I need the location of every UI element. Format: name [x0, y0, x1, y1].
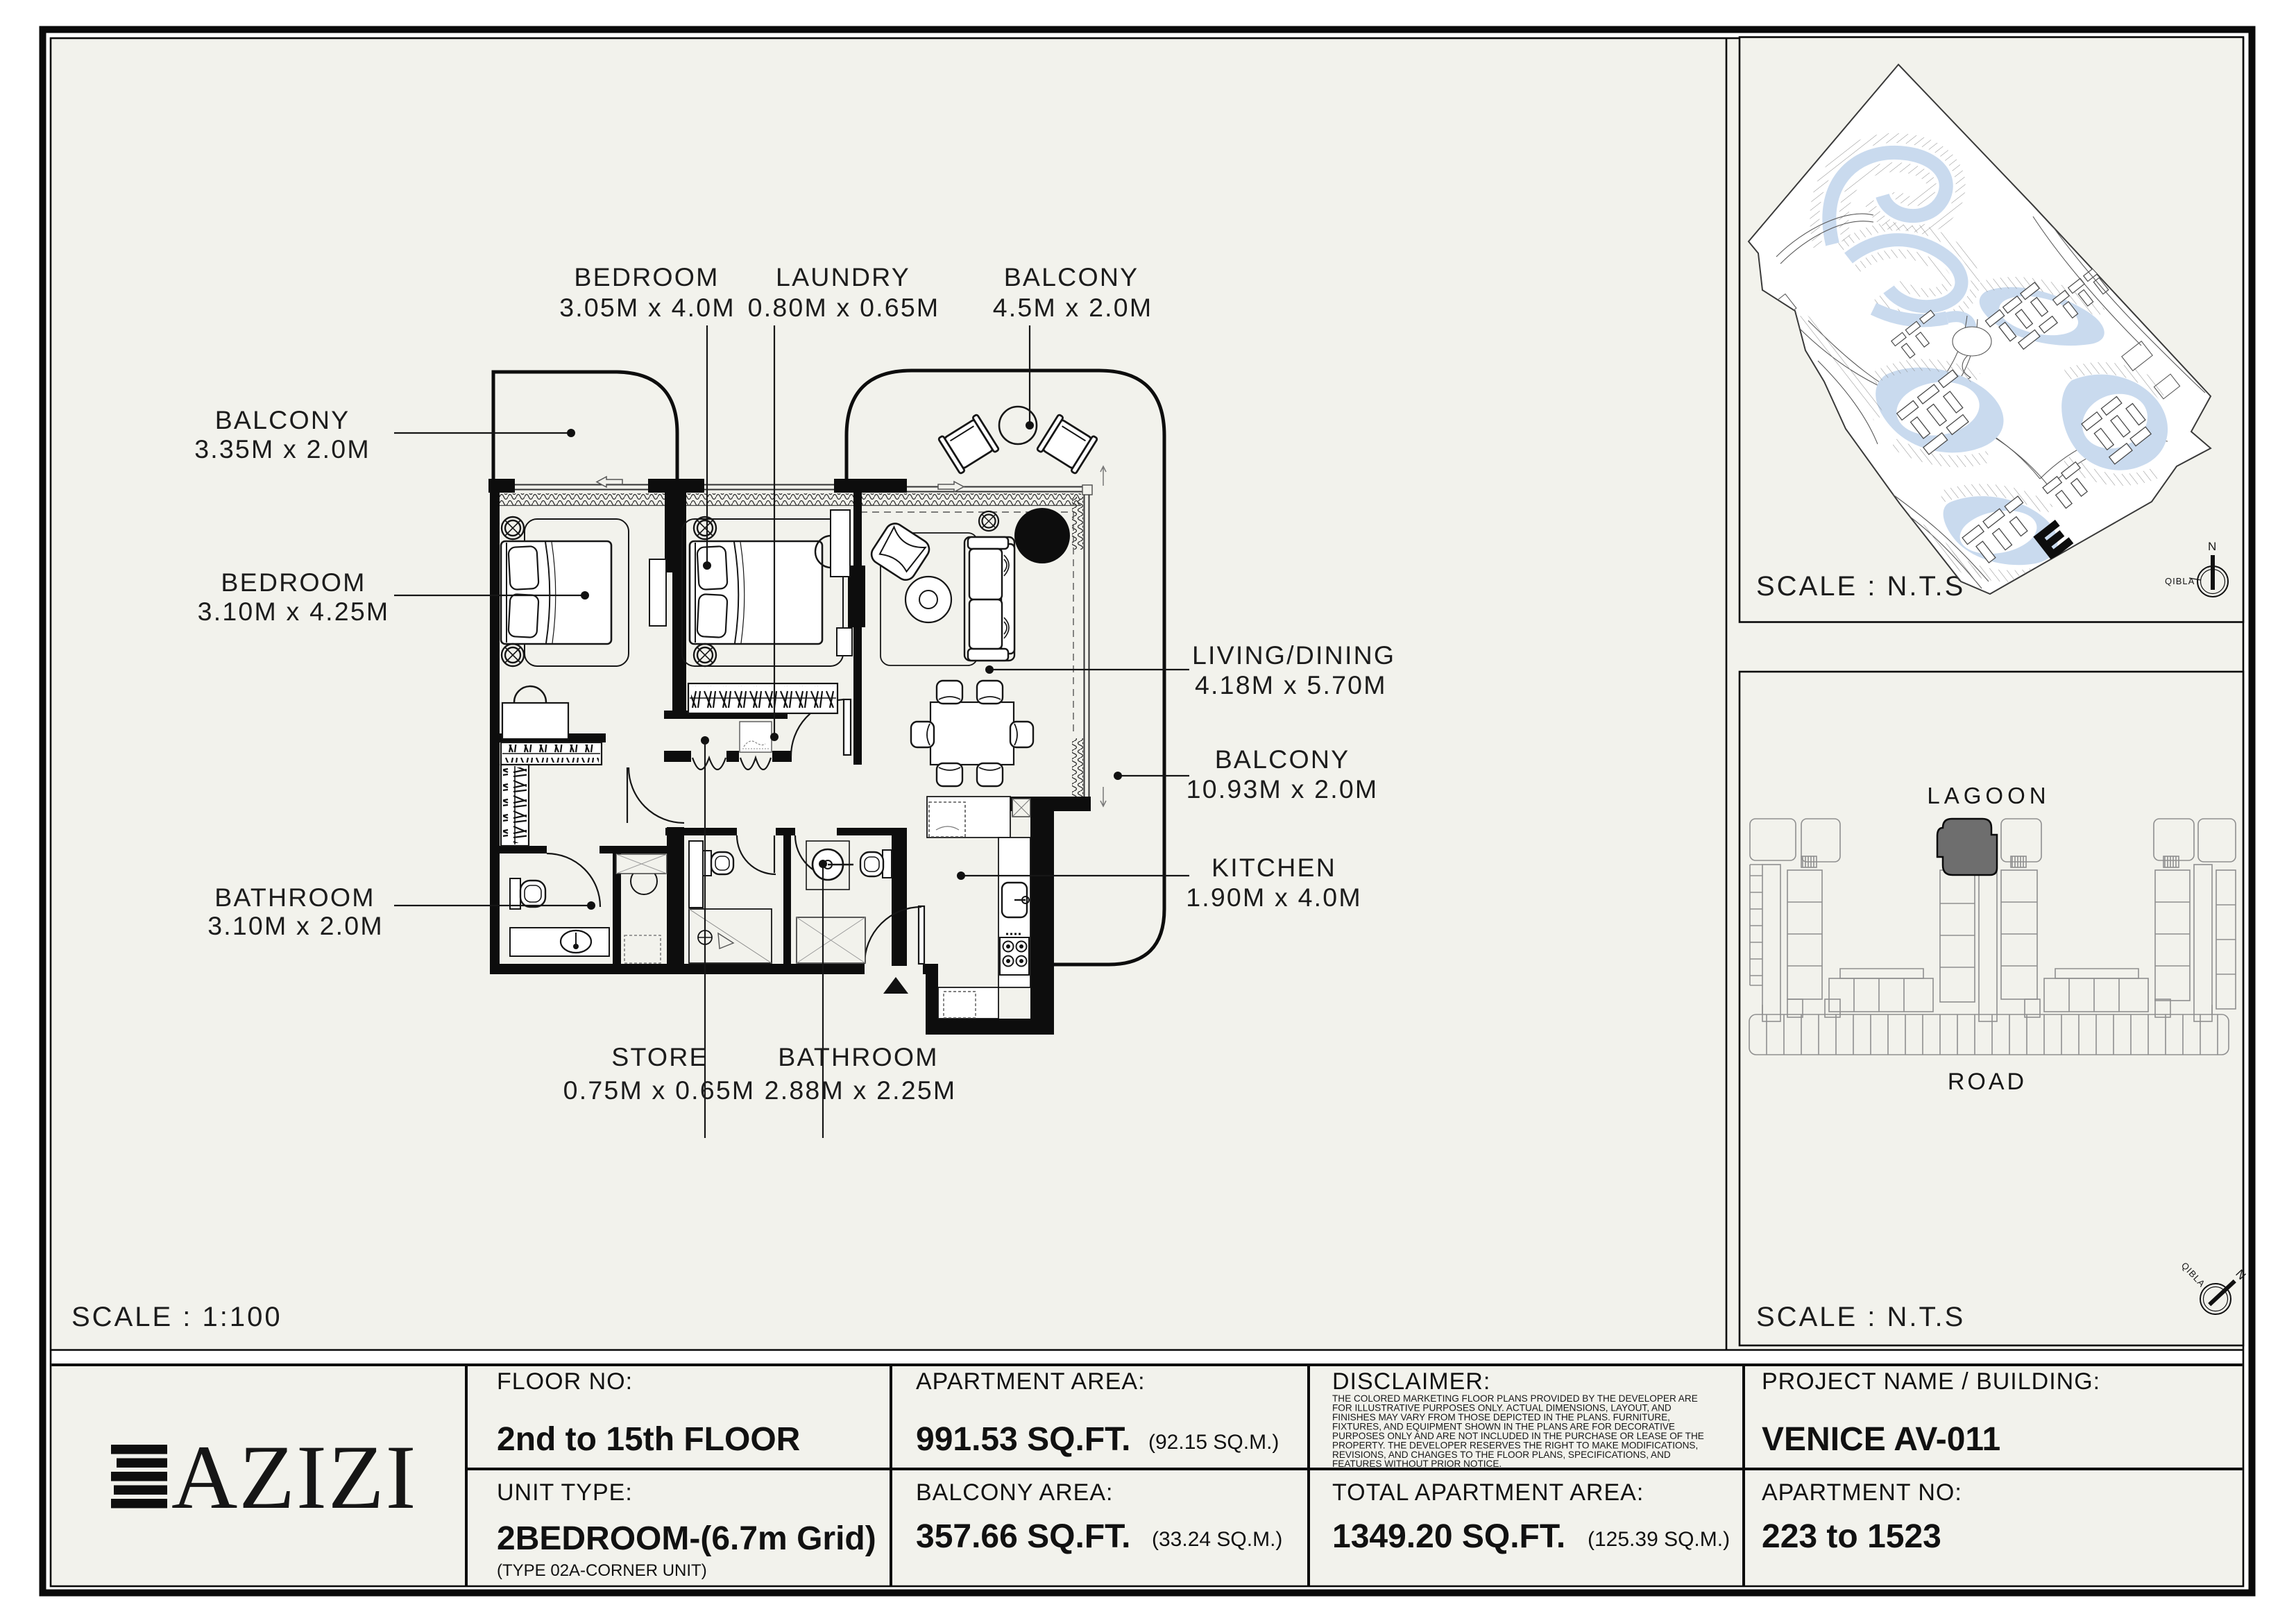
svg-text:3.35M x 2.0M: 3.35M x 2.0M — [194, 434, 371, 464]
svg-text:BATHROOM: BATHROOM — [214, 883, 375, 912]
svg-text:(125.39 SQ.M.): (125.39 SQ.M.) — [1588, 1528, 1730, 1551]
svg-text:4.18M x 5.70M: 4.18M x 5.70M — [1195, 670, 1387, 699]
svg-text:VENICE AV-011: VENICE AV-011 — [1762, 1421, 2000, 1458]
svg-text:N: N — [2208, 540, 2216, 553]
svg-text:3.10M x 2.0M: 3.10M x 2.0M — [207, 911, 384, 940]
svg-text:LIVING/DINING: LIVING/DINING — [1192, 640, 1395, 670]
svg-text:1.90M x 4.0M: 1.90M x 4.0M — [1186, 883, 1362, 912]
svg-text:4.5M x 2.0M: 4.5M x 2.0M — [993, 293, 1153, 322]
svg-text:UNIT TYPE:: UNIT TYPE: — [497, 1479, 633, 1506]
svg-text:SCALE : 1:100: SCALE : 1:100 — [71, 1302, 282, 1332]
svg-text:BALCONY AREA:: BALCONY AREA: — [916, 1479, 1114, 1506]
svg-text:3.05M x 4.0M: 3.05M x 4.0M — [559, 293, 735, 322]
svg-text:DISCLAIMER:: DISCLAIMER: — [1332, 1368, 1490, 1395]
svg-text:10.93M x 2.0M: 10.93M x 2.0M — [1187, 774, 1379, 804]
svg-text:991.53 SQ.FT.: 991.53 SQ.FT. — [916, 1421, 1131, 1458]
svg-text:2BEDROOM-(6.7m Grid): 2BEDROOM-(6.7m Grid) — [497, 1520, 876, 1557]
svg-text:357.66 SQ.FT.: 357.66 SQ.FT. — [916, 1518, 1131, 1555]
svg-text:APARTMENT NO:: APARTMENT NO: — [1762, 1479, 1962, 1506]
svg-text:APARTMENT AREA:: APARTMENT AREA: — [916, 1368, 1146, 1395]
svg-text:PROJECT NAME / BUILDING:: PROJECT NAME / BUILDING: — [1762, 1368, 2100, 1395]
svg-text:FLOOR NO:: FLOOR NO: — [497, 1368, 633, 1395]
svg-text:223 to 1523: 223 to 1523 — [1762, 1518, 1941, 1555]
svg-text:(TYPE 02A-CORNER UNIT): (TYPE 02A-CORNER UNIT) — [497, 1561, 707, 1580]
svg-text:ROAD: ROAD — [1948, 1069, 2027, 1095]
svg-text:(33.24 SQ.M.): (33.24 SQ.M.) — [1152, 1528, 1282, 1551]
svg-text:0.75M x 0.65M: 0.75M x 0.65M — [563, 1076, 756, 1105]
svg-text:SCALE : N.T.S: SCALE : N.T.S — [1756, 1302, 1965, 1332]
svg-text:BATHROOM: BATHROOM — [778, 1042, 939, 1071]
svg-text:KITCHEN: KITCHEN — [1211, 853, 1336, 882]
svg-text:0.80M x 0.65M: 0.80M x 0.65M — [748, 293, 940, 322]
svg-text:2nd to 15th FLOOR: 2nd to 15th FLOOR — [497, 1421, 800, 1458]
svg-text:QIBLA: QIBLA — [2165, 576, 2195, 586]
svg-text:TOTAL APARTMENT AREA:: TOTAL APARTMENT AREA: — [1332, 1479, 1644, 1506]
svg-text:FEATURES WITHOUT PRIOR NOTICE.: FEATURES WITHOUT PRIOR NOTICE. — [1332, 1459, 1502, 1469]
svg-text:BEDROOM: BEDROOM — [221, 568, 366, 597]
svg-text:SCALE : N.T.S: SCALE : N.T.S — [1756, 571, 1965, 602]
svg-text:BALCONY: BALCONY — [1004, 262, 1139, 291]
svg-text:LAUNDRY: LAUNDRY — [776, 262, 910, 291]
svg-text:LAGOON: LAGOON — [1927, 783, 2050, 808]
svg-text:3.10M x 4.25M: 3.10M x 4.25M — [198, 597, 390, 626]
svg-text:STORE: STORE — [611, 1042, 708, 1071]
svg-text:AZIZI: AZIZI — [171, 1426, 418, 1528]
svg-text:1349.20 SQ.FT.: 1349.20 SQ.FT. — [1332, 1518, 1565, 1555]
svg-text:BALCONY: BALCONY — [1215, 745, 1350, 774]
svg-text:(92.15 SQ.M.): (92.15 SQ.M.) — [1148, 1431, 1279, 1454]
svg-text:BALCONY: BALCONY — [215, 405, 350, 434]
svg-text:BEDROOM: BEDROOM — [574, 262, 719, 291]
svg-text:2.88M x 2.25M: 2.88M x 2.25M — [765, 1076, 957, 1105]
